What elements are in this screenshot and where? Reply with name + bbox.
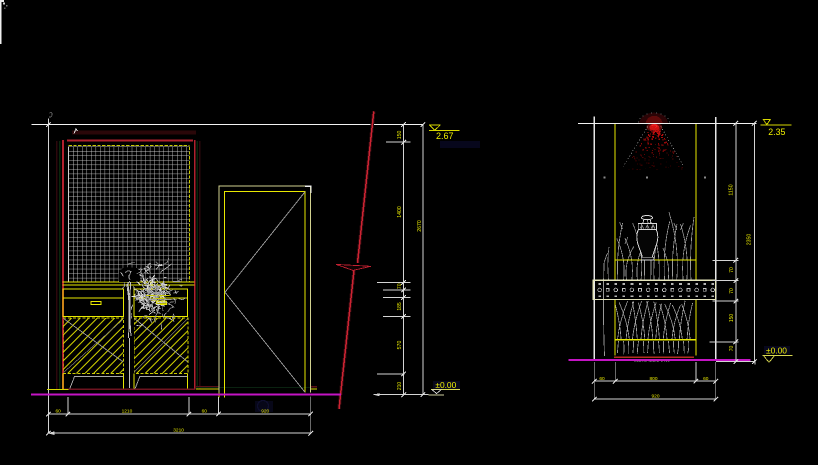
svg-text:2.35: 2.35 — [768, 127, 785, 137]
svg-text:1400: 1400 — [397, 206, 403, 218]
svg-text:150: 150 — [729, 314, 735, 323]
svg-text:210: 210 — [397, 382, 403, 391]
svg-text:60: 60 — [202, 409, 208, 415]
svg-text:3210: 3210 — [173, 428, 184, 434]
svg-text:±0.00: ±0.00 — [435, 380, 456, 390]
svg-text:1150: 1150 — [729, 184, 735, 195]
svg-text:±0.00: ±0.00 — [766, 345, 787, 355]
svg-text:2670: 2670 — [417, 220, 423, 232]
svg-text:920: 920 — [651, 394, 659, 400]
svg-text:1210: 1210 — [122, 409, 133, 415]
svg-text:60: 60 — [703, 376, 709, 382]
svg-text:70: 70 — [397, 283, 403, 289]
svg-text:2.67: 2.67 — [436, 131, 454, 141]
svg-text:150: 150 — [397, 130, 403, 139]
svg-text:920: 920 — [261, 409, 269, 415]
svg-text:70: 70 — [729, 267, 735, 273]
svg-text:60: 60 — [56, 409, 62, 415]
svg-text:2350: 2350 — [747, 234, 753, 246]
svg-text:185: 185 — [397, 302, 403, 311]
svg-text:60: 60 — [599, 376, 605, 382]
svg-text:70: 70 — [729, 288, 735, 294]
svg-text:800: 800 — [649, 376, 657, 382]
svg-text:70: 70 — [729, 346, 735, 352]
svg-text:570: 570 — [397, 341, 403, 350]
